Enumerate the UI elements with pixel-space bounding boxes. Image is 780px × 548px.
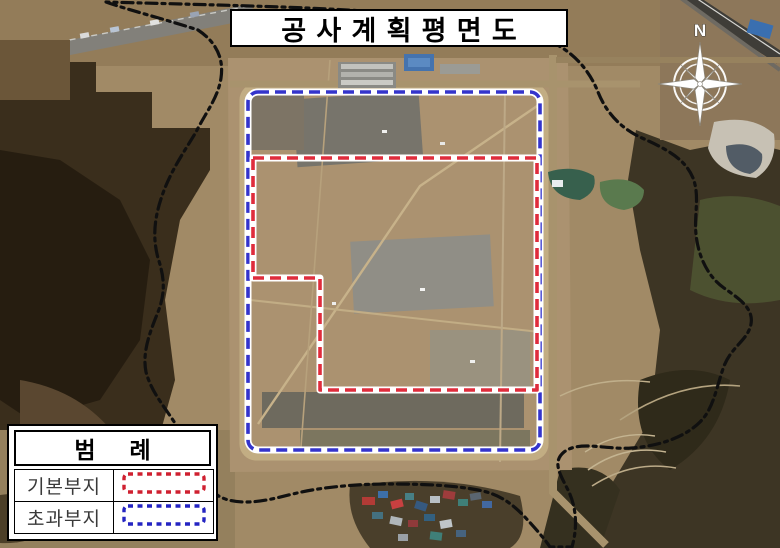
- map-title: 공사계획평면도: [230, 9, 568, 47]
- legend-header: 범 례: [14, 430, 211, 466]
- legend-label-basic-site: 기본부지: [15, 470, 114, 502]
- compass-north-label: N: [694, 21, 706, 40]
- legend-label-excess-site: 초과부지: [15, 502, 114, 534]
- legend-swatch-excess-site: [114, 502, 214, 534]
- construction-plan-map: N 공사계획평면도 범 례 기본부지 초과부지: [0, 0, 780, 548]
- legend: 범 례 기본부지 초과부지: [7, 424, 218, 541]
- excess-site-swatch-icon: [118, 502, 210, 528]
- legend-row-excess-site: 초과부지: [15, 502, 214, 534]
- basic-site-swatch-icon: [118, 470, 210, 496]
- legend-row-basic-site: 기본부지: [15, 470, 214, 502]
- legend-swatch-basic-site: [114, 470, 214, 502]
- legend-table: 기본부지 초과부지: [14, 469, 214, 534]
